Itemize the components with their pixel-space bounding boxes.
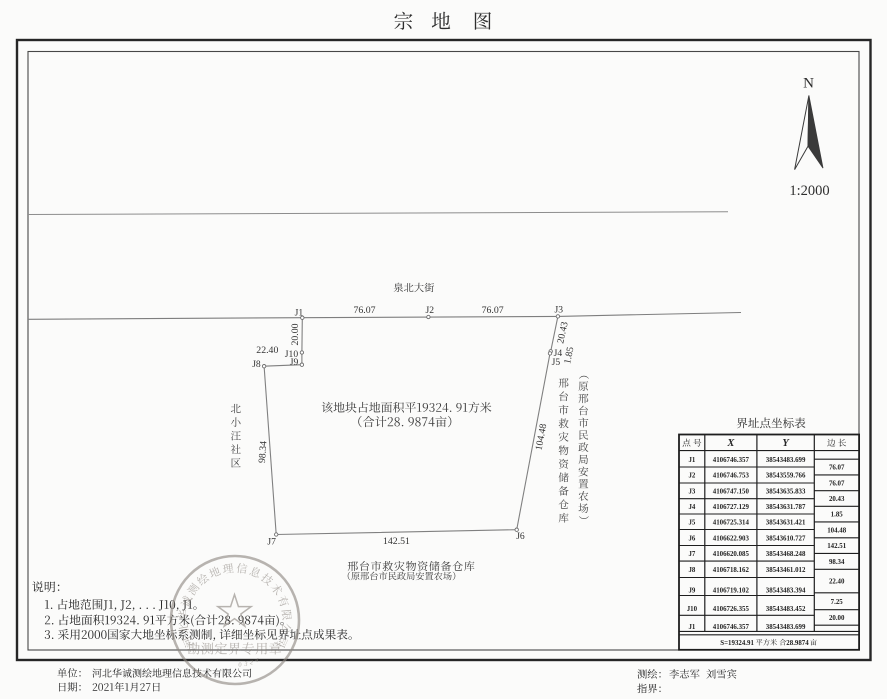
- svg-text:1.85: 1.85: [831, 512, 844, 519]
- svg-text:22.40: 22.40: [256, 345, 278, 356]
- svg-text:J2: J2: [688, 472, 695, 479]
- svg-text:38543610.727: 38543610.727: [766, 535, 806, 542]
- svg-text:142.51: 142.51: [383, 536, 410, 547]
- svg-text:J2: J2: [426, 305, 435, 316]
- svg-text:20.00: 20.00: [290, 323, 301, 345]
- svg-text:J6: J6: [516, 531, 525, 542]
- svg-text:4106746.357: 4106746.357: [713, 457, 750, 464]
- svg-text:4106746.753: 4106746.753: [713, 472, 750, 479]
- svg-text:X: X: [726, 438, 735, 449]
- svg-text:98.34: 98.34: [829, 559, 845, 566]
- svg-text:J4: J4: [688, 504, 695, 511]
- svg-text:20.00: 20.00: [829, 615, 845, 622]
- svg-text:J3: J3: [688, 488, 695, 495]
- svg-text:38543631.787: 38543631.787: [766, 504, 806, 511]
- svg-text:76.07: 76.07: [354, 305, 376, 316]
- svg-text:76.07: 76.07: [829, 480, 845, 487]
- svg-text:38543635.833: 38543635.833: [766, 488, 806, 495]
- svg-text:142.51: 142.51: [827, 543, 847, 550]
- svg-text:J10: J10: [687, 606, 698, 613]
- svg-text:38543559.766: 38543559.766: [766, 472, 806, 479]
- svg-text:J1: J1: [295, 308, 304, 319]
- svg-text:4106622.903: 4106622.903: [713, 535, 750, 542]
- svg-text:7.25: 7.25: [831, 599, 844, 606]
- svg-text:28.9874: 28.9874: [786, 640, 809, 647]
- svg-text:38543483.452: 38543483.452: [766, 606, 806, 613]
- svg-text:38543483.699: 38543483.699: [766, 457, 806, 464]
- svg-text:38543483.699: 38543483.699: [766, 624, 806, 631]
- svg-text:20.43: 20.43: [829, 496, 845, 503]
- svg-text:J5: J5: [552, 357, 561, 368]
- svg-text:S=19324.91: S=19324.91: [720, 640, 754, 647]
- svg-text:38543468.248: 38543468.248: [766, 551, 806, 558]
- svg-text:22.40: 22.40: [829, 579, 845, 586]
- svg-text:N: N: [803, 76, 814, 92]
- svg-text:4106727.129: 4106727.129: [713, 504, 750, 511]
- svg-text:4106747.150: 4106747.150: [713, 488, 750, 495]
- svg-text:76.07: 76.07: [482, 305, 504, 316]
- svg-text:38543631.421: 38543631.421: [766, 520, 806, 527]
- svg-text:98.34: 98.34: [257, 441, 270, 464]
- svg-text:J7: J7: [267, 537, 276, 548]
- svg-text:J7: J7: [688, 551, 695, 558]
- svg-text:J1: J1: [688, 624, 695, 631]
- svg-text:0: 0: [238, 662, 242, 669]
- svg-text:104.48: 104.48: [827, 527, 847, 534]
- svg-text:J8: J8: [252, 359, 261, 370]
- svg-text:76.07: 76.07: [829, 465, 845, 472]
- svg-text:J9: J9: [688, 587, 695, 594]
- svg-text:J5: J5: [688, 520, 695, 527]
- svg-text:4106725.314: 4106725.314: [713, 520, 750, 527]
- svg-text:4106719.102: 4106719.102: [713, 587, 750, 594]
- svg-text:J1: J1: [688, 457, 695, 464]
- svg-text:J10: J10: [285, 349, 299, 360]
- svg-text:J8: J8: [688, 567, 695, 574]
- svg-text:1:2000: 1:2000: [789, 183, 829, 199]
- svg-text:4106620.085: 4106620.085: [713, 551, 750, 558]
- svg-text:38543461.012: 38543461.012: [766, 567, 806, 574]
- svg-text:J6: J6: [688, 535, 695, 542]
- svg-text:4106726.355: 4106726.355: [713, 606, 750, 613]
- svg-text:38543483.394: 38543483.394: [766, 587, 806, 594]
- svg-text:4106718.162: 4106718.162: [713, 567, 750, 574]
- svg-text:4106746.357: 4106746.357: [713, 624, 750, 631]
- svg-text:J3: J3: [555, 305, 564, 316]
